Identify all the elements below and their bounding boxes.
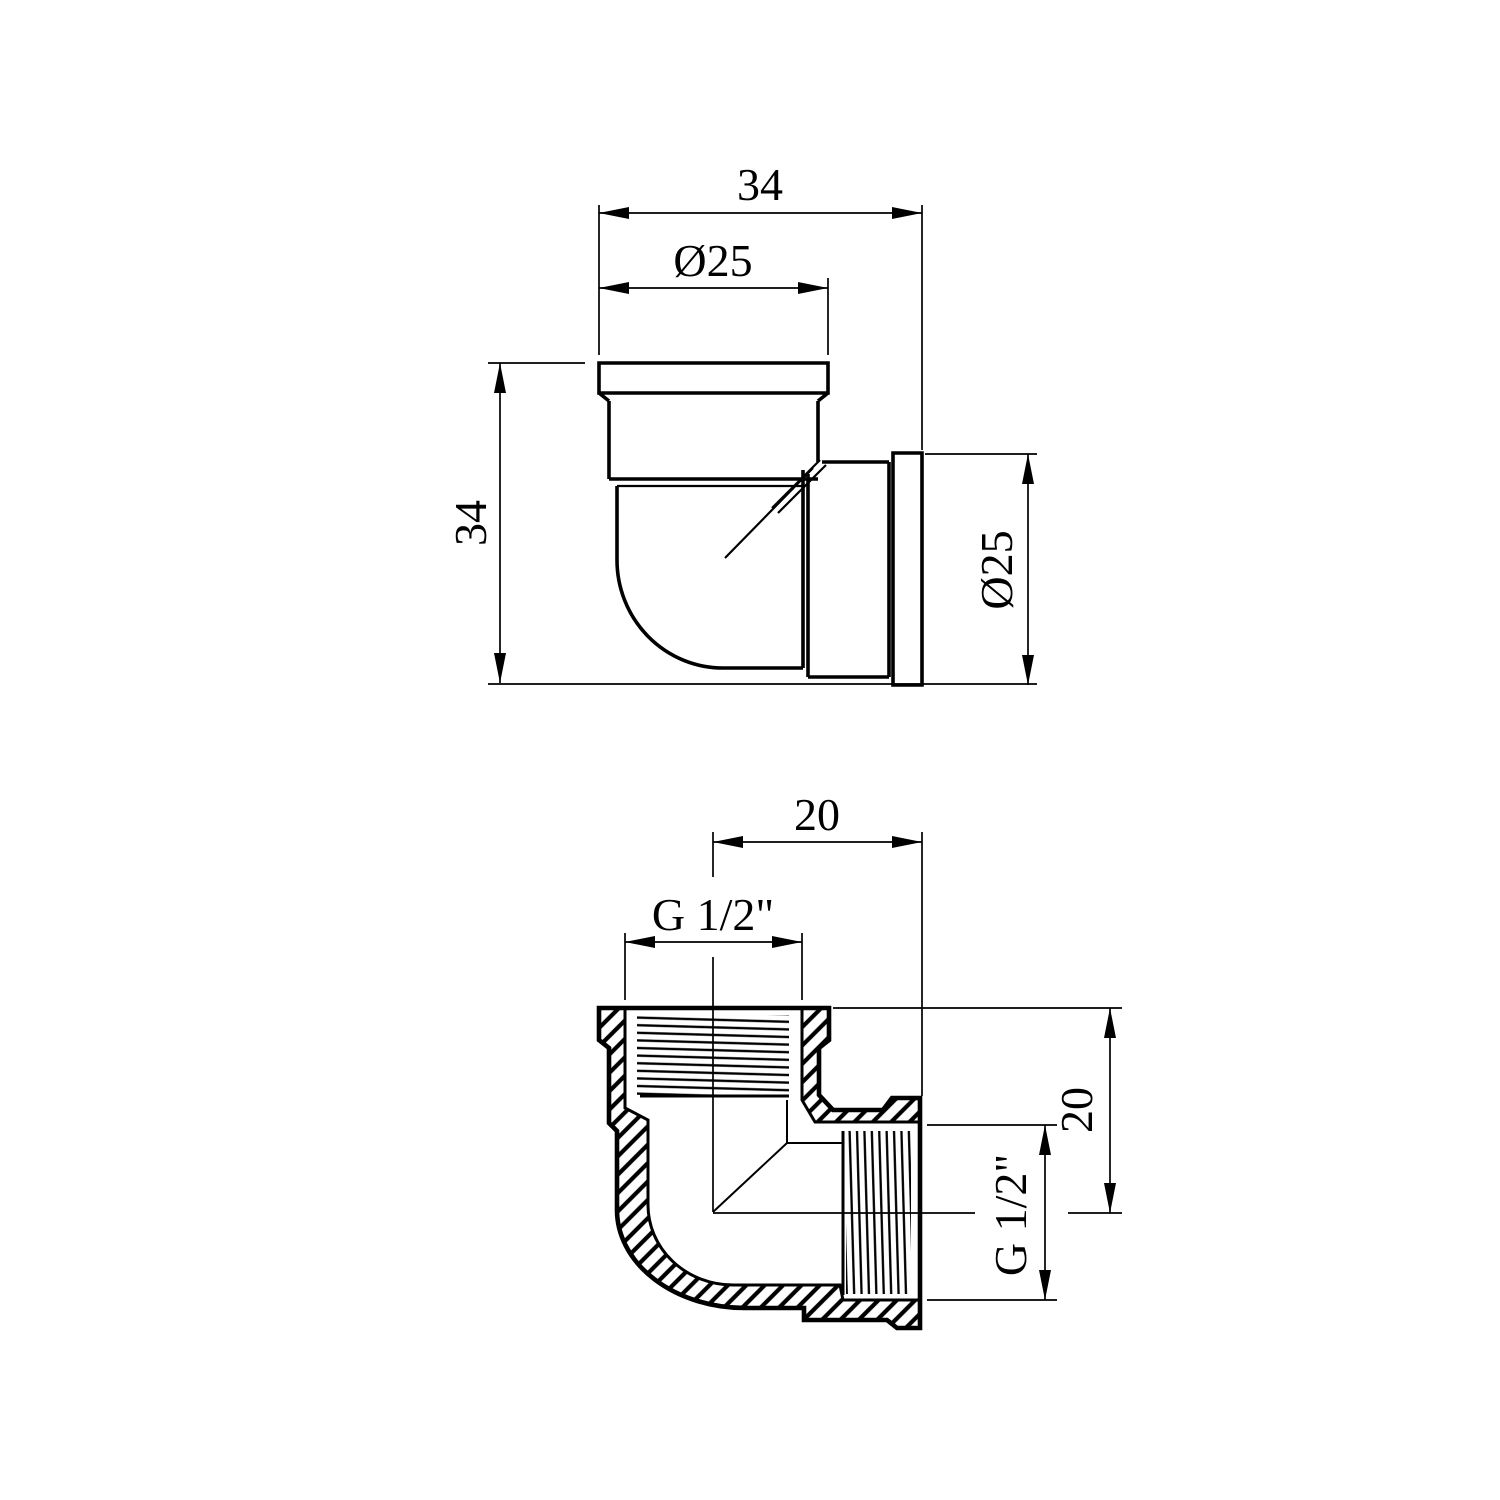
front-extension-lines (488, 205, 1037, 684)
section-view (599, 1008, 920, 1328)
dim-center-to-top-face-label: 20 (794, 789, 840, 840)
dim-overall-height-label: 34 (445, 500, 496, 546)
dim-top-port-diameter-label: Ø25 (673, 235, 752, 286)
dim-center-to-side-face-label: 20 (1051, 1087, 1102, 1133)
dim-top-thread-size-label: G 1/2" (652, 889, 774, 940)
front-view (599, 363, 922, 685)
front-view-details (617, 460, 826, 558)
front-view-dimensions: 34 Ø25 34 Ø25 (445, 159, 1037, 685)
dim-side-port-diameter-label: Ø25 (971, 530, 1022, 609)
front-view-outline (599, 363, 922, 685)
drawing-canvas: 34 Ø25 34 Ø25 20 G 1/2" 20 G 1/2" (0, 0, 1500, 1500)
dim-side-thread-size-label: G 1/2" (985, 1154, 1036, 1276)
front-dimension-arrows (494, 207, 1034, 685)
dim-overall-width-label: 34 (737, 159, 783, 210)
front-dimension-lines (500, 213, 1028, 685)
technical-drawing: 34 Ø25 34 Ø25 20 G 1/2" 20 G 1/2" (0, 0, 1500, 1500)
